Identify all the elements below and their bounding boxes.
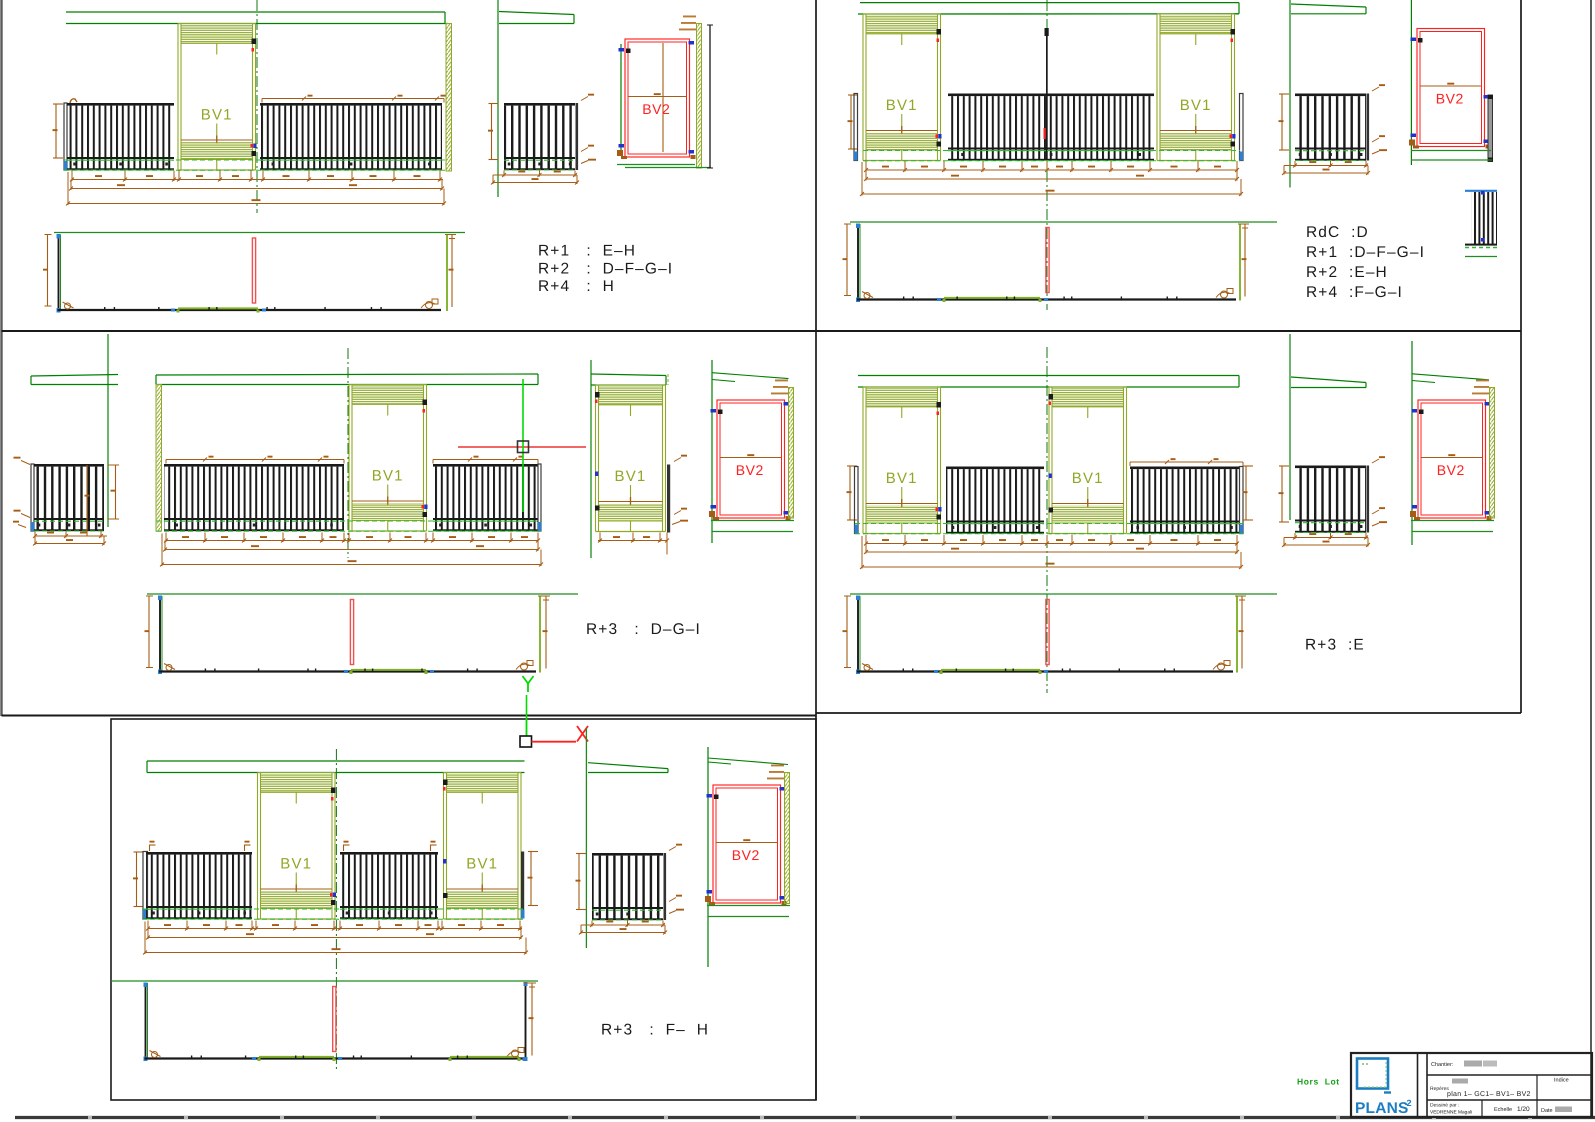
svg-text:Dessiné par :: Dessiné par :: [1430, 1103, 1459, 1109]
svg-text:BV1: BV1: [372, 468, 404, 485]
svg-text:Chantier:: Chantier:: [1431, 1062, 1454, 1068]
svg-text:BV1: BV1: [1072, 470, 1104, 487]
svg-text:1/20: 1/20: [1517, 1106, 1530, 1113]
svg-text:Date: Date: [1541, 1108, 1553, 1114]
svg-text:RdC :D: RdC :D: [1306, 224, 1369, 241]
svg-text:BV2: BV2: [736, 462, 764, 478]
svg-text:R+1 :D–F–G–I: R+1 :D–F–G–I: [1306, 244, 1425, 261]
svg-text:Hors Lot: Hors Lot: [1297, 1077, 1340, 1087]
svg-text:BV2: BV2: [642, 101, 670, 117]
svg-text:BV1: BV1: [201, 107, 233, 124]
svg-text:R+4 : H: R+4 : H: [538, 278, 615, 295]
svg-text:plan 1– GC1– BV1– BV2: plan 1– GC1– BV1– BV2: [1447, 1090, 1531, 1098]
svg-text:BV1: BV1: [1180, 97, 1212, 114]
svg-text:R+2 : D–F–G–I: R+2 : D–F–G–I: [538, 261, 673, 278]
svg-text:R+3 : F– H: R+3 : F– H: [601, 1022, 709, 1039]
svg-text:R+4 :F–G–I: R+4 :F–G–I: [1306, 284, 1403, 301]
svg-text:2: 2: [1407, 1098, 1412, 1108]
svg-text:BV1: BV1: [280, 856, 312, 873]
svg-text:BV1: BV1: [886, 470, 918, 487]
svg-text:Indice: Indice: [1554, 1078, 1569, 1084]
svg-text:R+1 : E–H: R+1 : E–H: [538, 243, 636, 260]
svg-text:R+3 : D–G–I: R+3 : D–G–I: [586, 621, 701, 638]
svg-text:BV1: BV1: [466, 856, 498, 873]
svg-text:R+3 :E: R+3 :E: [1305, 637, 1365, 654]
svg-text:PLANS: PLANS: [1355, 1100, 1409, 1117]
svg-text:Echelle: Echelle: [1494, 1107, 1512, 1113]
svg-text:BV1: BV1: [886, 97, 918, 114]
svg-text:BV2: BV2: [732, 847, 760, 863]
svg-text:VEDRENNE Magali: VEDRENNE Magali: [1430, 1110, 1472, 1116]
svg-text:R+2 :E–H: R+2 :E–H: [1306, 264, 1388, 281]
svg-text:BV2: BV2: [1436, 91, 1464, 107]
svg-text:BV2: BV2: [1437, 462, 1465, 478]
svg-text:BV1: BV1: [615, 468, 647, 485]
